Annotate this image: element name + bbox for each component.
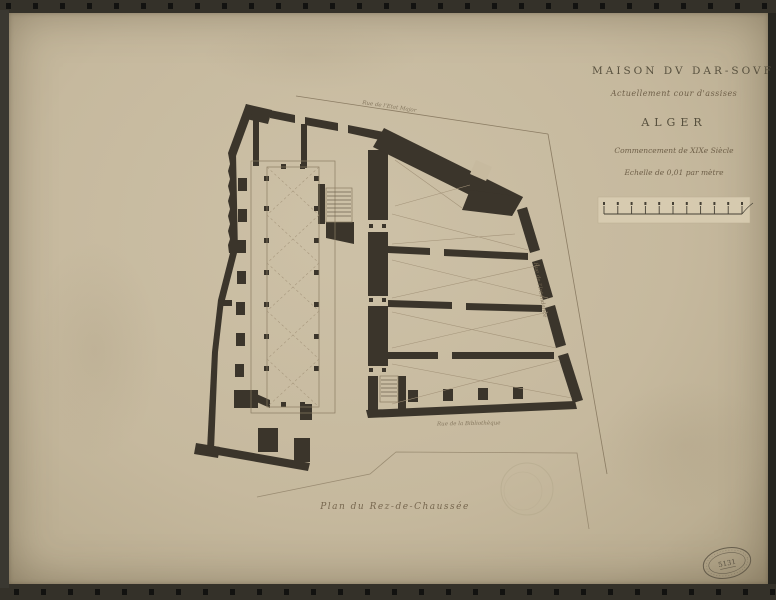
scale-bar — [598, 197, 753, 223]
scale-note: Echelle de 0,01 par mètre — [592, 169, 756, 177]
photo-frame: 5131 MAISON DV DAR-SOVF Actuellement cou… — [0, 0, 776, 600]
title-maison: MAISON DV DAR-SOVF — [592, 66, 756, 78]
street-label-bottom: Rue de la Bibliothèque — [437, 420, 501, 427]
staircase-top — [326, 188, 352, 222]
staircase-bottom — [380, 376, 398, 402]
plan-walls — [194, 104, 583, 471]
faint-circle-watermark — [501, 463, 553, 515]
courtyard-columns — [264, 164, 319, 407]
stamp-number: 5131 — [718, 558, 737, 570]
title-city: ALGER — [592, 117, 756, 129]
subtitle-actuellement: Actuellement cour d'assises — [592, 90, 756, 99]
archive-stamp: 5131 — [700, 543, 753, 582]
period-note: Commencement de XIXe Siècle — [592, 147, 756, 155]
plan-caption: Plan du Rez-de-Chaussée — [295, 503, 495, 513]
courtyard-lattice — [267, 167, 319, 407]
